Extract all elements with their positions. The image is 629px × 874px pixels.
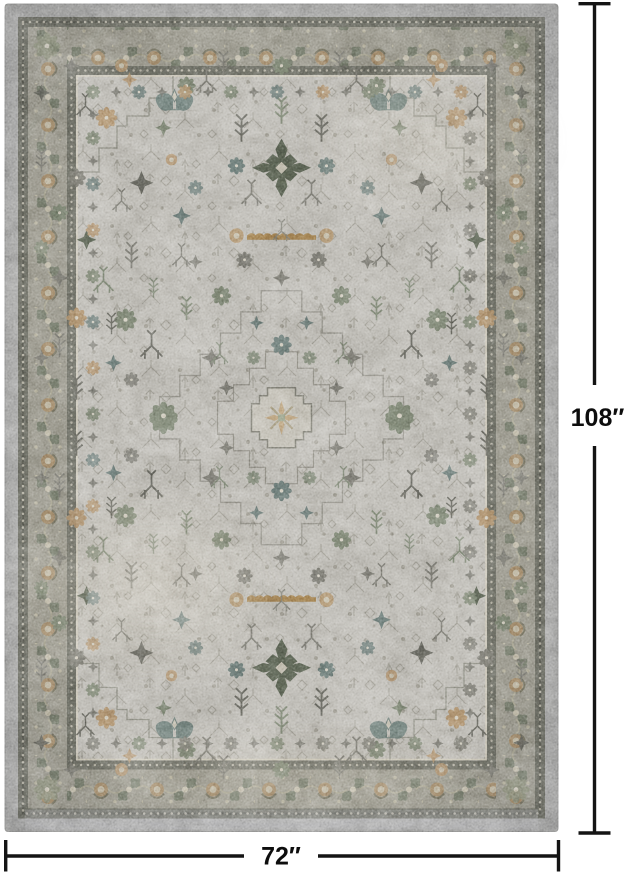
svg-text:72″: 72″	[261, 843, 301, 871]
svg-text:108″: 108″	[571, 404, 625, 432]
